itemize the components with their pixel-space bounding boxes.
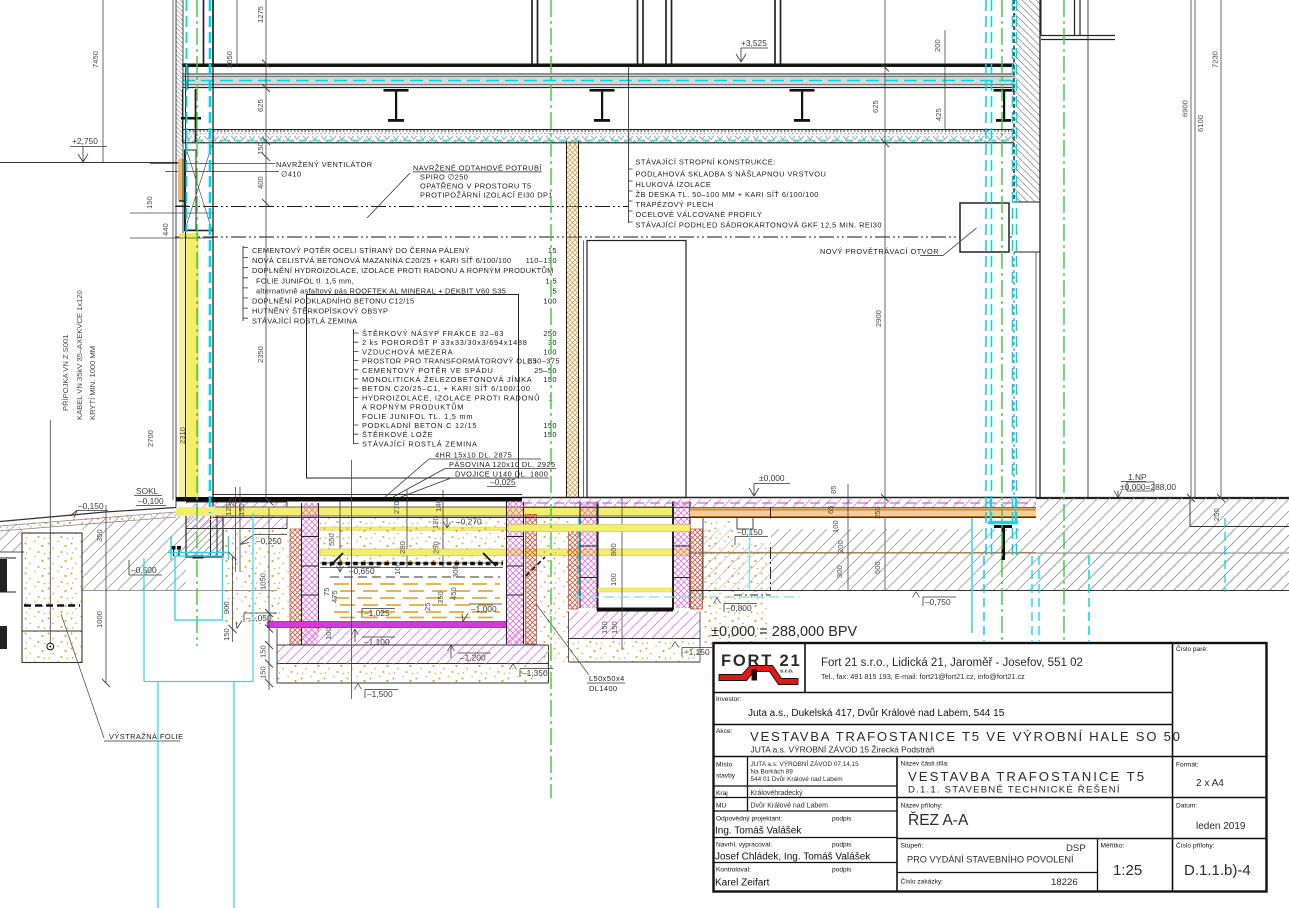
svg-text:25: 25 — [227, 498, 236, 506]
svg-text:NOVÁ CELISTVÁ BETONOVÁ MAZANIN: NOVÁ CELISTVÁ BETONOVÁ MAZANINA C20/25 +… — [252, 256, 511, 265]
svg-text:18226: 18226 — [1051, 877, 1078, 888]
svg-text:∅410: ∅410 — [281, 170, 302, 179]
svg-text:SPIRO ∅250: SPIRO ∅250 — [420, 173, 468, 182]
svg-text:2 x A4: 2 x A4 — [1196, 778, 1224, 789]
svg-text:120: 120 — [431, 516, 440, 529]
svg-text:VESTAVBA TRAFOSTANICE T5 VE VÝ: VESTAVBA TRAFOSTANICE T5 VE VÝROBNÍ HALE… — [750, 729, 1182, 744]
svg-text:Místo: Místo — [716, 762, 732, 769]
svg-text:150: 150 — [259, 645, 268, 658]
svg-text:85: 85 — [829, 486, 838, 494]
svg-text:100: 100 — [831, 520, 840, 533]
svg-text:Formát:: Formát: — [1176, 762, 1199, 769]
svg-text:2900: 2900 — [874, 310, 883, 327]
svg-text:Název části díla:: Název části díla: — [901, 761, 950, 768]
svg-text:Číslo zakázky:: Číslo zakázky: — [901, 877, 944, 886]
svg-text:425: 425 — [934, 108, 943, 121]
svg-text:PRO VYDÁNÍ STAVEBNÍHO POVOLENÍ: PRO VYDÁNÍ STAVEBNÍHO POVOLENÍ — [907, 855, 1074, 865]
svg-text:STÁVAJÍCÍ ROSTLÁ ZEMINA: STÁVAJÍCÍ ROSTLÁ ZEMINA — [362, 439, 478, 448]
svg-text:VESTAVBA TRAFOSTANICE T5: VESTAVBA TRAFOSTANICE T5 — [908, 769, 1146, 784]
svg-text:6900: 6900 — [1181, 100, 1190, 117]
svg-text:HLUKOVÁ IZOLACE: HLUKOVÁ IZOLACE — [636, 180, 712, 189]
svg-text:CEMENTOVÝ POTĚR OCELI STÍRANÝ: CEMENTOVÝ POTĚR OCELI STÍRANÝ DO ČERNA P… — [252, 246, 470, 255]
svg-text:350: 350 — [95, 529, 104, 542]
svg-text:7230: 7230 — [1211, 51, 1220, 68]
svg-text:350–375: 350–375 — [528, 357, 560, 366]
svg-text:2050: 2050 — [225, 51, 234, 68]
svg-text:Číslo přílohy:: Číslo přílohy: — [1176, 841, 1215, 850]
svg-text:625: 625 — [256, 99, 265, 112]
svg-text:–1,000: –1,000 — [471, 604, 497, 614]
svg-text:ŽB DESKA TL. 50–100 MM + KARI: ŽB DESKA TL. 50–100 MM + KARI SÍŤ 6/100/… — [636, 190, 819, 199]
svg-text:MONOLITICKÁ ŽELEZOBETONOVÁ JÍM: MONOLITICKÁ ŽELEZOBETONOVÁ JÍMKA — [362, 375, 532, 384]
svg-text:1:25: 1:25 — [1113, 862, 1142, 879]
svg-text:550: 550 — [327, 533, 336, 546]
svg-text:STÁVAJÍCÍ PODHLED SÁDROKARTONO: STÁVAJÍCÍ PODHLED SÁDROKARTONOVÁ GKF 12,… — [636, 220, 882, 229]
svg-text:450: 450 — [449, 587, 458, 600]
svg-text:HUTNĚNÝ ŠTĚRKOPÍSKOVÝ OBSYP: HUTNĚNÝ ŠTĚRKOPÍSKOVÝ OBSYP — [252, 307, 388, 316]
svg-text:Investor:: Investor: — [716, 696, 741, 703]
svg-text:–0,025: –0,025 — [490, 477, 516, 487]
svg-text:FOLIE JUNIFOL tl. 1,5 mm,: FOLIE JUNIFOL tl. 1,5 mm, — [256, 276, 354, 285]
svg-text:140: 140 — [434, 499, 443, 512]
svg-text:150: 150 — [543, 421, 557, 430]
svg-text:1000: 1000 — [95, 611, 104, 628]
svg-text:Kontroloval:: Kontroloval: — [716, 867, 751, 874]
svg-text:DOPLNĚNÍ PODKLADNÍHO BETONU C1: DOPLNĚNÍ PODKLADNÍHO BETONU C12/15 — [252, 297, 414, 306]
svg-text:440: 440 — [161, 223, 170, 236]
svg-text:OCELOVÉ VÁLCOVANÉ PROFILY: OCELOVÉ VÁLCOVANÉ PROFILY — [636, 210, 763, 219]
svg-text:JUTA a.s. VÝROBNÍ ZÁVOD 15 Žir: JUTA a.s. VÝROBNÍ ZÁVOD 15 Žirecká Podst… — [751, 745, 935, 755]
svg-text:7450: 7450 — [91, 51, 100, 68]
svg-text:100: 100 — [393, 562, 402, 575]
svg-text:–1,500: –1,500 — [367, 689, 393, 699]
svg-text:leden 2019: leden 2019 — [1196, 821, 1246, 832]
svg-text:800: 800 — [609, 543, 618, 556]
svg-text:2 ks POROROŠT P 33x33/30x3/694: 2 ks POROROŠT P 33x33/30x3/694x1488 — [362, 338, 528, 347]
svg-text:400: 400 — [256, 176, 265, 189]
svg-text:DOPLNĚNÍ HYDROIZOLACE, IZOLACE: DOPLNĚNÍ HYDROIZOLACE, IZOLACE PROTI RAD… — [252, 266, 554, 275]
svg-text:150: 150 — [237, 503, 246, 516]
svg-text:–1,025: –1,025 — [364, 608, 390, 618]
svg-text:DL1400: DL1400 — [589, 684, 618, 693]
svg-text:JUTA a.s. VÝROBNÍ ZÁVOD 07,14,: JUTA a.s. VÝROBNÍ ZÁVOD 07,14,15 — [751, 759, 860, 768]
svg-text:HYDROIZOLACE, IZOLACE PROTI RA: HYDROIZOLACE, IZOLACE PROTI RADONŮ — [362, 393, 540, 402]
svg-text:stavby: stavby — [716, 773, 736, 780]
svg-text:Josef Chládek, Ing. Tomáš Valá: Josef Chládek, Ing. Tomáš Valášek — [715, 852, 871, 863]
svg-text:100: 100 — [543, 347, 557, 356]
svg-text:–1,350: –1,350 — [522, 668, 548, 678]
svg-text:ŠTĚRKOVÝ NÁSYP FRAKCE 32–63: ŠTĚRKOVÝ NÁSYP FRAKCE 32–63 — [362, 329, 504, 338]
svg-text:–0,650: –0,650 — [349, 566, 375, 576]
svg-text:280: 280 — [398, 541, 407, 554]
svg-text:PROTIPOŽÁRNÍ IZOLACÍ EI30 DP1: PROTIPOŽÁRNÍ IZOLACÍ EI30 DP1 — [420, 191, 553, 200]
svg-text:–1,150: –1,150 — [684, 647, 710, 657]
svg-text:D.1.1. STAVEBNĚ TECHNICKÉ ŘEŠE: D.1.1. STAVEBNĚ TECHNICKÉ ŘEŠENÍ — [908, 785, 1121, 796]
svg-text:150: 150 — [145, 196, 154, 209]
svg-text:25–50: 25–50 — [534, 366, 557, 375]
svg-text:544 01 Dvůr Králové nad Labem: 544 01 Dvůr Králové nad Labem — [751, 775, 843, 783]
svg-text:CEMENTOVÝ POTĚR VE SPÁDU: CEMENTOVÝ POTĚR VE SPÁDU — [362, 366, 494, 375]
svg-text:±0,000=288,00: ±0,000=288,00 — [1120, 482, 1176, 492]
svg-text:DSP: DSP — [1066, 843, 1086, 854]
svg-text:Fort 21 s.r.o., Lidická 21, Ja: Fort 21 s.r.o., Lidická 21, Jaroměř - Jo… — [821, 657, 1083, 669]
svg-text:ŘEZ A-A: ŘEZ A-A — [908, 812, 969, 829]
svg-text:FOLIE JUNIFOL TL. 1,5 mm: FOLIE JUNIFOL TL. 1,5 mm — [362, 412, 473, 421]
svg-text:150: 150 — [256, 142, 265, 155]
svg-text:–0,800: –0,800 — [726, 603, 752, 613]
svg-text:OPATŘENO V PROSTORU T5: OPATŘENO V PROSTORU T5 — [420, 182, 532, 191]
svg-text:VÝSTRAŽNÁ FOLIE: VÝSTRAŽNÁ FOLIE — [109, 732, 184, 741]
svg-text:–0,270: –0,270 — [456, 517, 482, 527]
svg-text:150: 150 — [543, 430, 557, 439]
svg-text:65: 65 — [826, 506, 835, 514]
svg-text:Odpovědný projektant:: Odpovědný projektant: — [716, 816, 783, 823]
svg-text:PODKLADNÍ BETON C 12/15: PODKLADNÍ BETON C 12/15 — [362, 421, 477, 430]
svg-text:4HR 15x10 DL. 2875: 4HR 15x10 DL. 2875 — [435, 451, 512, 460]
svg-text:1050: 1050 — [259, 573, 268, 590]
svg-text:250: 250 — [1212, 508, 1221, 521]
svg-text:Ing. Tomáš Valášek: Ing. Tomáš Valášek — [715, 826, 802, 837]
svg-text:–1,050: –1,050 — [246, 613, 272, 623]
svg-text:30: 30 — [548, 338, 557, 347]
svg-text:150: 150 — [543, 375, 557, 384]
svg-text:5: 5 — [552, 286, 557, 295]
svg-text:L50x50x4: L50x50x4 — [589, 674, 625, 683]
svg-text:s.r.o.: s.r.o. — [780, 669, 794, 675]
svg-text:STÁVAJÍCÍ ROSTLÁ ZEMINA: STÁVAJÍCÍ ROSTLÁ ZEMINA — [252, 317, 357, 326]
svg-text:±0,000 = 288,000 BPV: ±0,000 = 288,000 BPV — [711, 624, 858, 640]
svg-text:BETON C20/25–C1, + KARI SÍŤ 6/: BETON C20/25–C1, + KARI SÍŤ 6/100/100 — [362, 384, 531, 393]
svg-text:VZDUCHOVÁ MEZERA: VZDUCHOVÁ MEZERA — [362, 347, 453, 356]
svg-text:STÁVAJÍCÍ STROPNÍ KONSTRUKCE:: STÁVAJÍCÍ STROPNÍ KONSTRUKCE: — [636, 158, 776, 167]
svg-text:100: 100 — [609, 573, 618, 586]
svg-text:300: 300 — [451, 565, 460, 578]
svg-text:350: 350 — [436, 591, 445, 604]
svg-text:+2,750: +2,750 — [72, 136, 98, 146]
svg-text:Stupeň:: Stupeň: — [901, 843, 924, 850]
svg-text:PÁSOVINA 120x10 DL. 2925: PÁSOVINA 120x10 DL. 2925 — [449, 460, 556, 469]
svg-text:±0,000: ±0,000 — [759, 473, 785, 483]
svg-text:Královéhradecký: Královéhradecký — [751, 790, 804, 797]
svg-text:alternativně asfaltový pás ROO: alternativně asfaltový pás ROOFTEK AL MI… — [256, 286, 506, 295]
svg-text:TRAPÉZOVÝ PLECH: TRAPÉZOVÝ PLECH — [636, 200, 714, 209]
svg-text:Kraj: Kraj — [716, 790, 728, 797]
svg-text:625: 625 — [871, 100, 880, 113]
svg-text:2310: 2310 — [178, 427, 187, 444]
svg-text:Název přílohy:: Název přílohy: — [901, 803, 943, 810]
svg-text:150: 150 — [259, 666, 268, 679]
svg-text:Dvůr Králové nad Labem: Dvůr Králové nad Labem — [751, 802, 829, 810]
svg-text:MÚ: MÚ — [716, 801, 726, 810]
svg-text:ŠTĚRKOVÉ LOŽE: ŠTĚRKOVÉ LOŽE — [362, 430, 433, 439]
svg-text:–0,150: –0,150 — [78, 501, 104, 511]
svg-text:1275: 1275 — [256, 6, 265, 23]
svg-text:250: 250 — [432, 541, 441, 554]
svg-text:Datum:: Datum: — [1176, 803, 1197, 810]
svg-text:–1,200: –1,200 — [460, 653, 486, 663]
svg-text:200: 200 — [933, 39, 942, 52]
svg-text:PODLAHOVÁ SKLADBA S NÁŠLAPNOU: PODLAHOVÁ SKLADBA S NÁŠLAPNOU VRSTVOU — [636, 170, 827, 179]
svg-text:250: 250 — [873, 506, 882, 519]
svg-text:25: 25 — [423, 603, 432, 611]
svg-text:A ROPNÝM PRODUKTŮM: A ROPNÝM PRODUKTŮM — [362, 403, 464, 412]
svg-text:500: 500 — [873, 561, 882, 574]
svg-text:Akce:: Akce: — [716, 728, 733, 735]
svg-text:–0,100: –0,100 — [138, 496, 164, 506]
svg-text:Tel., fax: 491 815 193, E-mai: Tel., fax: 491 815 193, E-mail: fort21@f… — [821, 672, 1025, 681]
svg-text:150: 150 — [222, 628, 231, 641]
svg-text:150: 150 — [610, 621, 619, 634]
svg-text:SOKL: SOKL — [136, 486, 159, 496]
svg-text:100: 100 — [324, 627, 333, 640]
svg-text:1.NP: 1.NP — [1128, 472, 1147, 482]
svg-text:Na Borkách 89: Na Borkách 89 — [751, 769, 794, 776]
svg-text:Číslo paré:: Číslo paré: — [1176, 644, 1208, 653]
svg-text:NAVRŽENÉ ODTAHOVÉ POTRUBÍ: NAVRŽENÉ ODTAHOVÉ POTRUBÍ — [413, 164, 542, 173]
svg-text:Navrhl, vypracoval:: Navrhl, vypracoval: — [716, 842, 772, 849]
svg-text:270: 270 — [392, 501, 401, 514]
svg-text:110–130: 110–130 — [526, 256, 557, 265]
svg-text:250: 250 — [543, 329, 557, 338]
svg-text:15: 15 — [548, 246, 557, 255]
svg-text:Juta a.s., Dukelská 417, Dvůr: Juta a.s., Dukelská 417, Dvůr Králové na… — [748, 707, 1005, 719]
svg-text:D.1.1.b)-4: D.1.1.b)-4 — [1184, 862, 1251, 879]
svg-text:podpis: podpis — [832, 816, 852, 823]
svg-text:Karel Zeifart: Karel Zeifart — [715, 878, 770, 889]
svg-text:–0,750: –0,750 — [925, 597, 951, 607]
svg-text:+3,525: +3,525 — [741, 38, 767, 48]
svg-text:150: 150 — [600, 621, 609, 634]
svg-text:–1,100: –1,100 — [364, 637, 390, 647]
svg-text:900: 900 — [222, 601, 231, 614]
svg-text:200: 200 — [836, 540, 845, 553]
svg-text:podpis: podpis — [832, 842, 852, 849]
svg-text:2700: 2700 — [146, 430, 155, 447]
svg-text:100: 100 — [543, 297, 557, 306]
svg-text:PROSTOR PRO TRANSFORMÁTOROVÝ O: PROSTOR PRO TRANSFORMÁTOROVÝ OLEJ — [362, 357, 537, 366]
svg-text:475: 475 — [330, 590, 339, 603]
svg-text:300: 300 — [835, 565, 844, 578]
svg-text:podpis: podpis — [832, 867, 852, 874]
svg-text:KRYTÍ MIN. 1000 MM: KRYTÍ MIN. 1000 MM — [88, 346, 97, 420]
svg-text:NOVÝ PROVĚTRÁVACÍ OTVOR: NOVÝ PROVĚTRÁVACÍ OTVOR — [820, 247, 939, 256]
svg-text:75: 75 — [322, 588, 331, 596]
svg-text:2350: 2350 — [256, 346, 265, 363]
svg-text:KABEL VN 35kV 35–AXEKVCE 1x120: KABEL VN 35kV 35–AXEKVCE 1x120 — [75, 290, 84, 420]
svg-text:PŘÍPOJKA VN Z S001: PŘÍPOJKA VN Z S001 — [61, 335, 70, 411]
svg-text:Měřítko:: Měřítko: — [1101, 843, 1125, 850]
svg-text:6100: 6100 — [1196, 115, 1205, 132]
svg-text:NAVRŽENÝ VENTILÁTOR: NAVRŽENÝ VENTILÁTOR — [276, 160, 373, 169]
